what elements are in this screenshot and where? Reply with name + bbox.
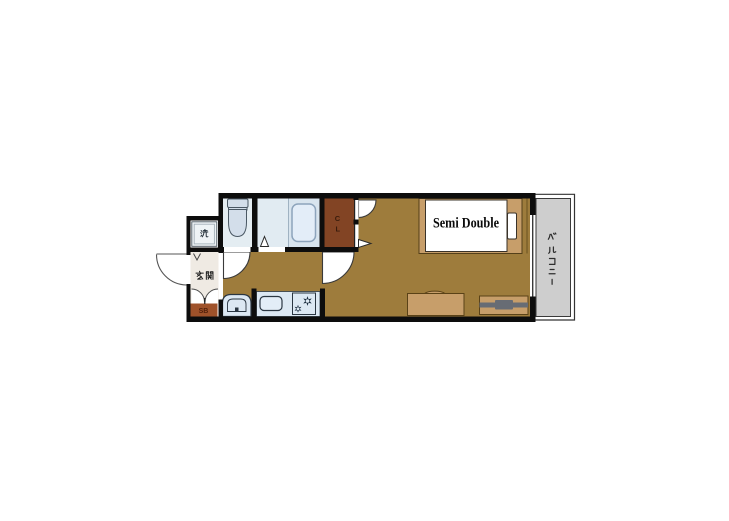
svg-text:Semi Double: Semi Double [433, 216, 499, 232]
svg-text:C: C [335, 214, 341, 223]
svg-text:L: L [336, 224, 341, 233]
svg-text:SB: SB [199, 308, 209, 315]
